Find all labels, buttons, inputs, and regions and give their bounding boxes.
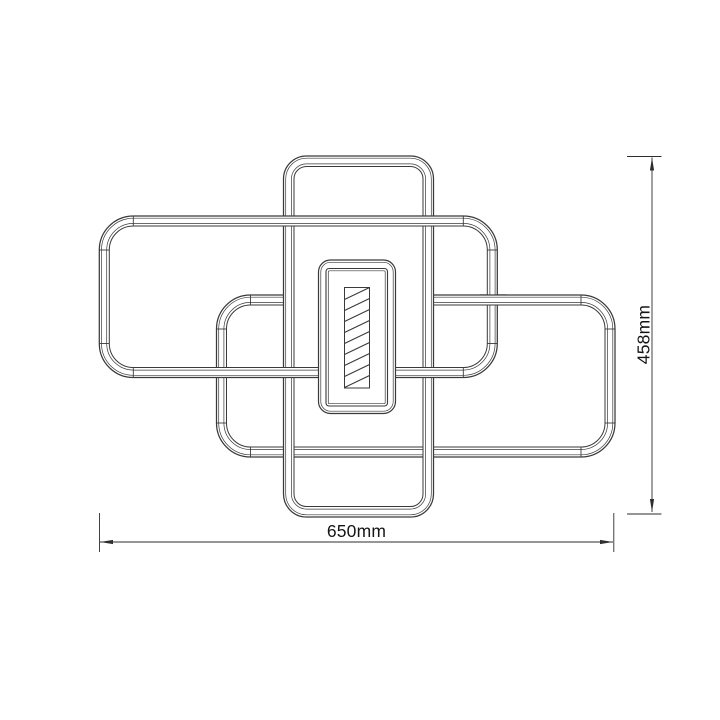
- ceiling-light-line-drawing: [0, 0, 720, 720]
- width-dimension-label: 650mm: [312, 522, 402, 541]
- height-dimension-label: 458mm: [634, 290, 653, 380]
- drawing-canvas: 650mm 458mm: [0, 0, 720, 720]
- center-panel: [319, 260, 396, 414]
